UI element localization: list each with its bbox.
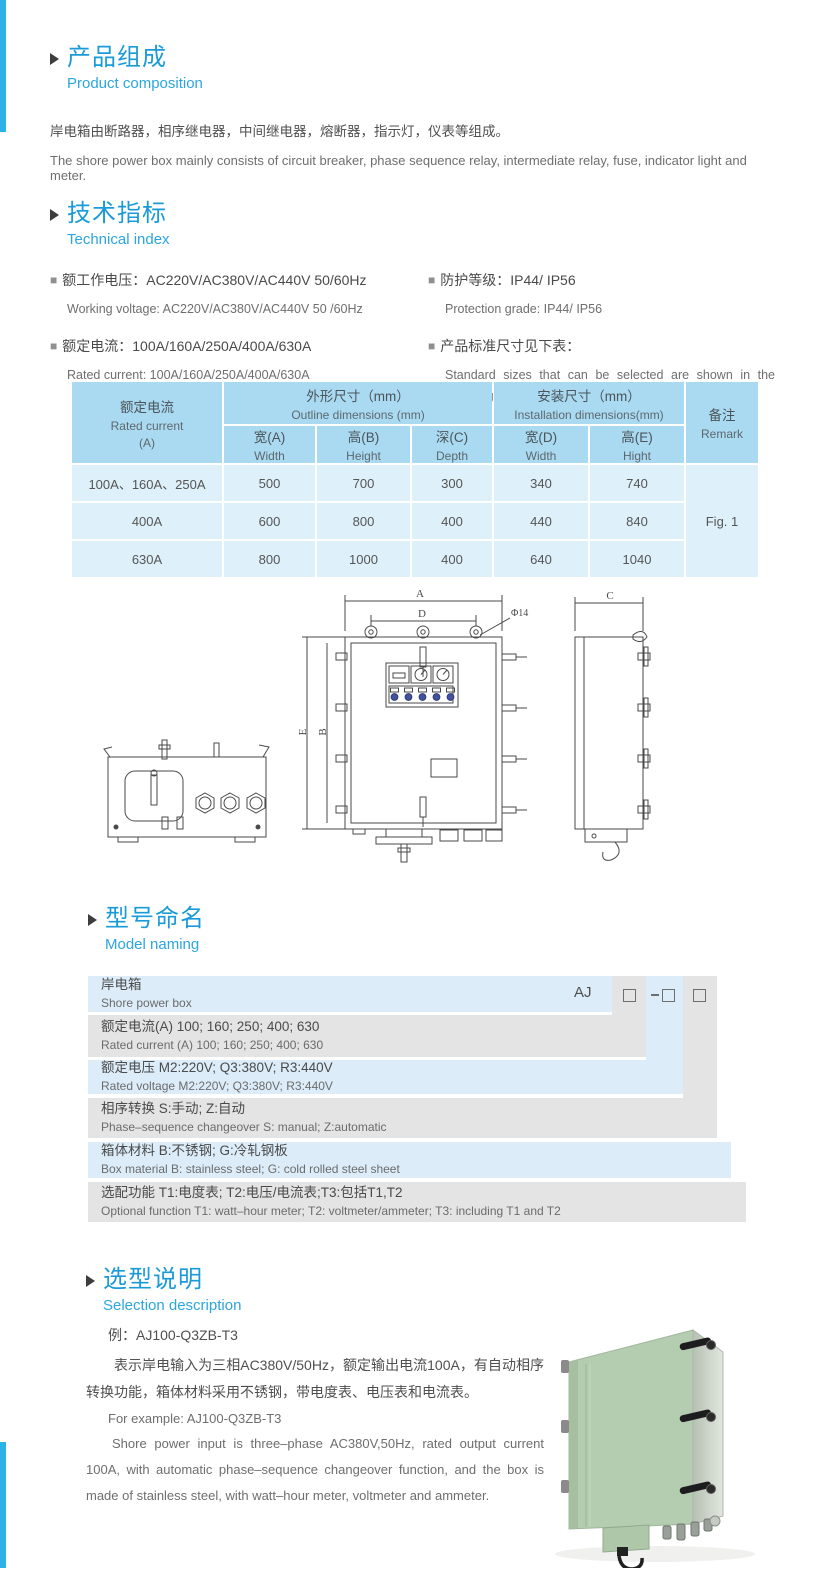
cell-remark: Fig. 1 <box>686 465 758 577</box>
dim-label-d: D <box>418 608 426 620</box>
subheader-width-a: 宽(A) Width <box>224 426 315 463</box>
code-box-voltage <box>651 987 675 1005</box>
col-header-outline: 外形尺寸（mm） Outline dimensions (mm) <box>224 382 492 424</box>
subheader-cn: 深(C) <box>412 426 492 446</box>
row-text-cn: 箱体材料 B:不锈钢; G:冷轧钢板 <box>101 1142 731 1161</box>
section-title-en: Model naming <box>105 936 768 953</box>
section-title-en: Product composition <box>67 75 782 92</box>
dim-label-a: A <box>416 588 424 600</box>
col-header-remark: 备注 Remark <box>686 382 758 463</box>
section-title-cn: 产品组成 <box>67 44 782 72</box>
subheader-width-d: 宽(D) Width <box>494 426 588 463</box>
selection-paragraph-cn: 表示岸电输入为三相AC380V/50Hz，额定输出电流100A，有自动相序转换功… <box>86 1352 544 1406</box>
arrow-right-icon <box>50 209 59 221</box>
cell-depth: 400 <box>412 541 492 577</box>
latches-drawing <box>502 654 527 813</box>
header-text-cn: 额定电流 <box>72 396 222 416</box>
cell-width: 800 <box>224 541 315 577</box>
naming-row-phase: 相序转换 S:手动; Z:自动 Phase–sequence changeove… <box>88 1098 717 1138</box>
dim-label-e: E <box>297 728 309 735</box>
cell-depth: 400 <box>412 503 492 539</box>
header-text-cn: 外形尺寸（mm） <box>224 385 492 405</box>
cell-height: 800 <box>317 503 410 539</box>
section-heading: 选型说明 Selection description <box>86 1266 544 1314</box>
example-model-en: For example: AJ100-Q3ZB-T3 <box>86 1411 544 1426</box>
product-photo <box>545 1300 805 1568</box>
row-text-cn: 相序转换 S:手动; Z:自动 <box>101 1100 717 1119</box>
square-bullet-icon: ■ <box>50 339 57 353</box>
page-edge-stripe-bottom <box>0 1442 6 1568</box>
section-heading: 型号命名 Model naming <box>88 905 768 953</box>
side-view-drawing: C <box>575 590 650 860</box>
header-text-en: Outline dimensions (mm) <box>224 408 492 422</box>
cell-install-height: 1040 <box>590 541 684 577</box>
row-text-en: Rated current (A) 100; 160; 250; 400; 63… <box>101 1037 646 1054</box>
cell-width: 500 <box>224 465 315 501</box>
header-text-en: Rated current <box>72 419 222 433</box>
cell-rated: 630A <box>72 541 222 577</box>
section-heading: 产品组成 Product composition <box>50 44 782 92</box>
spec-cn-text: 防护等级：IP44/ IP56 <box>440 272 575 288</box>
subheader-height-e: 高(E) Hight <box>590 426 684 463</box>
cell-height: 1000 <box>317 541 410 577</box>
subheader-depth-c: 深(C) Depth <box>412 426 492 463</box>
dash-icon <box>651 994 659 996</box>
col-header-rated-current: 额定电流 Rated current (A) <box>72 382 222 463</box>
technical-drawing-fig1: A D Φ14 E B <box>70 585 760 885</box>
row-text-en: Optional function T1: watt–hour meter; T… <box>101 1203 746 1220</box>
row-text-cn: 额定电流(A) 100; 160; 250; 400; 630 <box>101 1018 646 1037</box>
bracket-clamp <box>617 1547 628 1556</box>
front-view-drawing: A D Φ14 E B <box>297 588 528 862</box>
spec-item-voltage: ■额工作电压：AC220V/AC380V/AC440V 50/60Hz Work… <box>50 270 428 320</box>
section-title-en: Selection description <box>103 1297 544 1314</box>
cell-install-width: 640 <box>494 541 588 577</box>
cell-install-height: 740 <box>590 465 684 501</box>
section-title-en: Technical index <box>67 231 790 248</box>
row-text-cn: 岸电箱 <box>101 976 612 995</box>
naming-row-current: 额定电流(A) 100; 160; 250; 400; 630 Rated cu… <box>88 1015 646 1057</box>
naming-row-material: 箱体材料 B:不锈钢; G:冷轧钢板 Box material B: stain… <box>88 1142 731 1178</box>
composition-text-en: The shore power box mainly consists of c… <box>50 153 782 183</box>
cell-rated: 400A <box>72 503 222 539</box>
subheader-en: Height <box>317 449 410 463</box>
header-text-unit: (A) <box>72 436 222 450</box>
model-prefix: AJ <box>574 984 592 1001</box>
section-heading: 技术指标 Technical index <box>50 200 790 248</box>
meter-panel-drawing <box>386 663 458 707</box>
example-model-cn: 例：AJ100-Q3ZB-T3 <box>86 1325 544 1345</box>
cell-rated: 100A、160A、250A <box>72 465 222 501</box>
model-naming-table: 岸电箱 Shore power box 额定电流(A) 100; 160; 25… <box>88 976 746 1222</box>
section-model-naming: 型号命名 Model naming 岸电箱 Shore power box 额定… <box>88 905 768 1222</box>
cabinet-side-face <box>693 1330 723 1524</box>
cabinet-front-face <box>569 1330 693 1529</box>
arrow-right-icon <box>86 1275 95 1287</box>
cell-install-width: 340 <box>494 465 588 501</box>
spec-en-text: Protection grade: IP44/ IP56 <box>445 299 775 320</box>
section-title-cn: 型号命名 <box>105 905 768 933</box>
table-row: 630A 800 1000 400 640 1040 <box>72 541 758 577</box>
naming-row-optional: 选配功能 T1:电度表; T2:电压/电流表;T3:包括T1,T2 Option… <box>88 1182 746 1222</box>
header-text-en: Installation dimensions(mm) <box>494 408 684 422</box>
header-text-en: Remark <box>686 427 758 441</box>
row-text-cn: 选配功能 T1:电度表; T2:电压/电流表;T3:包括T1,T2 <box>101 1184 746 1203</box>
bottom-view-drawing <box>104 740 269 842</box>
table-row: 400A 600 800 400 440 840 <box>72 503 758 539</box>
naming-row-product: 岸电箱 Shore power box <box>88 976 612 1012</box>
col-header-installation: 安装尺寸（mm） Installation dimensions(mm) <box>494 382 684 424</box>
section-selection-description: 选型说明 Selection description 例：AJ100-Q3ZB-… <box>86 1266 544 1509</box>
header-text-cn: 备注 <box>686 404 758 424</box>
row-text-en: Shore power box <box>101 995 612 1012</box>
photo-shadow <box>555 1546 755 1562</box>
composition-text-cn: 岸电箱由断路器，相序继电器，中间继电器，熔断器，指示灯，仪表等组成。 <box>50 120 782 140</box>
section-title-cn: 技术指标 <box>67 200 790 228</box>
subheader-en: Depth <box>412 449 492 463</box>
cell-depth: 300 <box>412 465 492 501</box>
spec-item-protection: ■防护等级：IP44/ IP56 Protection grade: IP44/… <box>428 270 793 320</box>
catalog-page: { "colors": { "accent": "#1a9bd7", "acce… <box>0 0 830 1568</box>
arrow-right-icon <box>50 53 59 65</box>
code-box-optional <box>693 987 706 1005</box>
subheader-en: Width <box>494 449 588 463</box>
dimensions-table: 额定电流 Rated current (A) 外形尺寸（mm） Outline … <box>70 380 760 579</box>
selection-paragraph-en: Shore power input is three–phase AC380V,… <box>86 1431 544 1509</box>
page-edge-stripe-top <box>0 0 6 132</box>
header-text-cn: 安装尺寸（mm） <box>494 385 684 405</box>
cell-height: 700 <box>317 465 410 501</box>
section-product-composition: 产品组成 Product composition 岸电箱由断路器，相序继电器，中… <box>50 44 782 183</box>
subheader-height-b: 高(B) Height <box>317 426 410 463</box>
subheader-cn: 宽(D) <box>494 426 588 446</box>
cell-install-height: 840 <box>590 503 684 539</box>
row-text-en: Phase–sequence changeover S: manual; Z:a… <box>101 1119 717 1136</box>
row-text-en: Box material B: stainless steel; G: cold… <box>101 1161 731 1178</box>
hinge-pins <box>561 1360 569 1493</box>
cabinet-left-edge <box>569 1360 578 1529</box>
section-title-cn: 选型说明 <box>103 1266 544 1294</box>
dim-label-b: B <box>317 728 329 735</box>
table-row: 100A、160A、250A 500 700 300 340 740 Fig. … <box>72 465 758 501</box>
spec-en-text: Working voltage: AC220V/AC380V/AC440V 50… <box>67 299 410 320</box>
cell-install-width: 440 <box>494 503 588 539</box>
spec-cn-text: 产品标准尺寸见下表： <box>440 338 580 354</box>
naming-row-voltage: 额定电压 M2:220V; Q3:380V; R3:440V Rated vol… <box>88 1060 683 1094</box>
subheader-en: Hight <box>590 449 684 463</box>
dim-label-c: C <box>606 590 613 602</box>
subheader-cn: 高(E) <box>590 426 684 446</box>
row-text-cn: 额定电压 M2:220V; Q3:380V; R3:440V <box>101 1059 683 1078</box>
dim-label-hole: Φ14 <box>511 608 528 619</box>
row-text-en: Rated voltage M2:220V; Q3:380V; R3:440V <box>101 1078 683 1095</box>
code-box-current <box>623 987 636 1005</box>
subheader-cn: 高(B) <box>317 426 410 446</box>
spec-cn-text: 额工作电压：AC220V/AC380V/AC440V 50/60Hz <box>62 272 366 288</box>
square-bullet-icon: ■ <box>50 273 57 287</box>
cell-width: 600 <box>224 503 315 539</box>
subheader-cn: 宽(A) <box>224 426 315 446</box>
spec-cn-text: 额定电流：100A/160A/250A/400A/630A <box>62 338 311 354</box>
square-bullet-icon: ■ <box>428 273 435 287</box>
arrow-right-icon <box>88 914 97 926</box>
square-bullet-icon: ■ <box>428 339 435 353</box>
subheader-en: Width <box>224 449 315 463</box>
